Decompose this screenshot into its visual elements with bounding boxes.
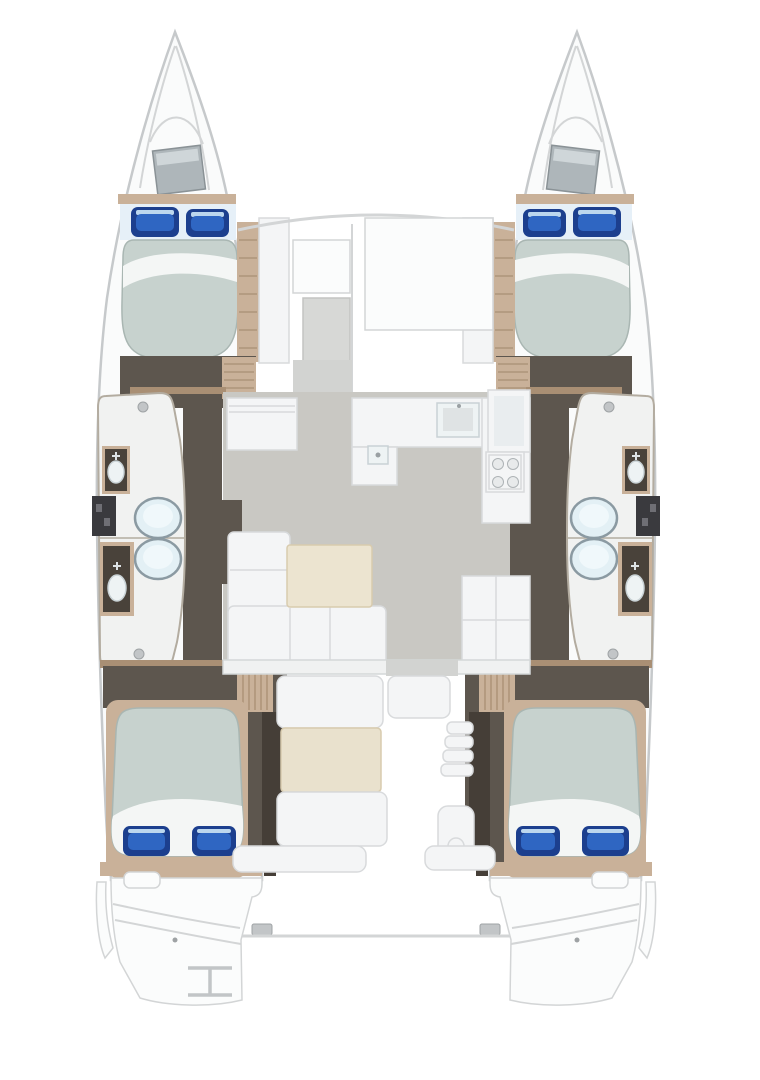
cockpit-stern-bench-starboard [425,846,495,870]
foredeck-panel [365,218,493,330]
foredeck-panel [293,240,350,293]
transom-step-pad [124,872,160,888]
stern-cleat [252,924,272,935]
cockpit-bench-forward [277,676,383,728]
washbasin-cabinet [100,542,134,616]
deck-fitting [134,649,144,659]
deck-fitting [138,402,148,412]
forward-door-walkway [293,360,352,392]
galley-stove [486,452,524,492]
forward-cabin-closet [237,218,289,363]
cockpit-stern-bench-port [233,846,366,872]
galley-sink [437,403,479,437]
shower-box [92,496,116,536]
cockpit-bench-starboard [388,676,450,718]
toilet [135,539,181,579]
catamaran-floor-plan [0,0,760,1080]
saloon-table [287,545,372,607]
washbasin-cabinet [102,446,130,494]
cockpit-bench-aft [277,792,387,846]
transom-platform [111,878,262,1005]
toilet [135,498,181,538]
hull-corridor-floor [183,406,222,666]
sliding-door-opening [386,660,458,676]
galley-island-module [368,446,388,464]
aft-bed-pillow [192,826,236,856]
floor-plan-canvas: Catamaran yacht deck plan — 4-cabin layo… [0,0,760,1080]
nav-cabinet [227,398,297,450]
forward-cabin-shelf [118,194,236,204]
sliding-door-sill [223,660,530,674]
forward-bed-pillow [186,209,229,237]
aft-bed-pillow [123,826,170,856]
saloon-aft-cabinet [462,576,530,664]
bow-hatch [152,145,205,195]
drain-fitting [173,938,178,943]
forward-bed-pillow [131,207,179,237]
cockpit-table [281,728,381,792]
